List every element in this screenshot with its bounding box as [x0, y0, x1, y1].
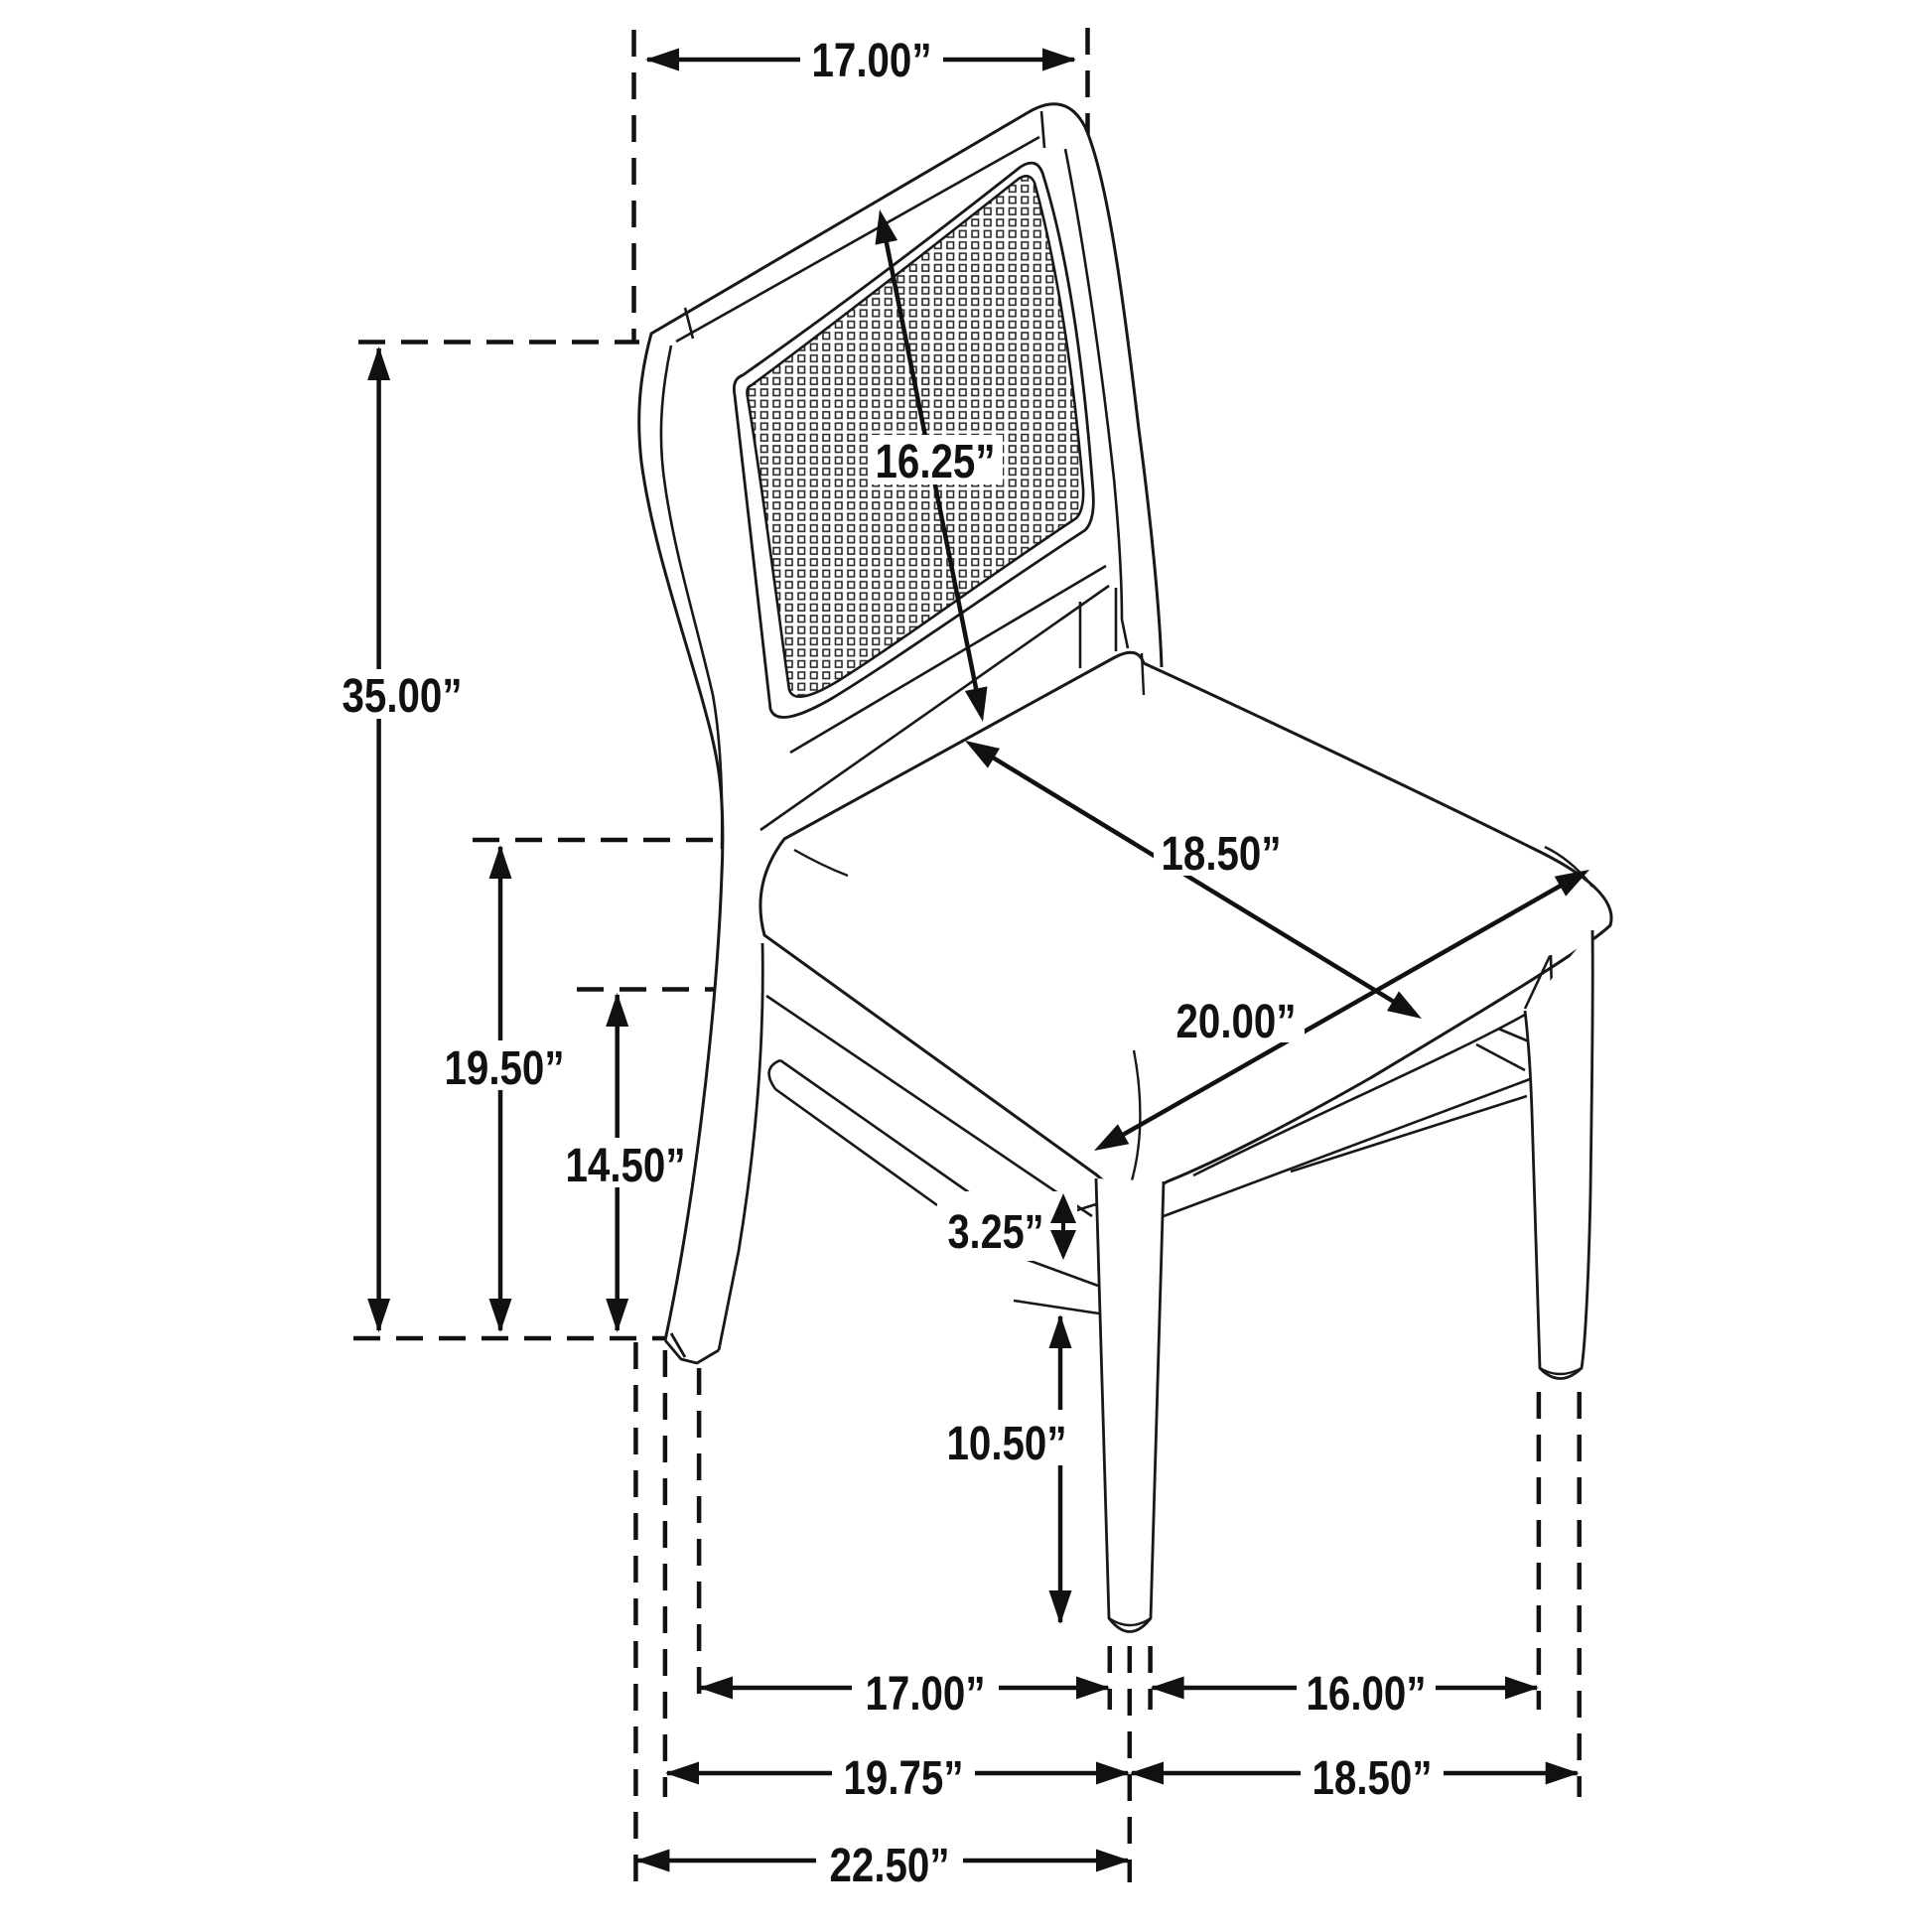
svg-text:17.00”: 17.00” — [866, 1668, 986, 1721]
svg-text:14.50”: 14.50” — [566, 1140, 686, 1192]
svg-text:19.50”: 19.50” — [445, 1042, 565, 1095]
svg-text:19.75”: 19.75” — [844, 1752, 964, 1805]
svg-text:17.00”: 17.00” — [812, 35, 932, 87]
svg-text:18.50”: 18.50” — [1162, 828, 1282, 881]
svg-text:20.00”: 20.00” — [1176, 996, 1297, 1048]
svg-text:18.50”: 18.50” — [1312, 1752, 1433, 1805]
svg-text:22.50”: 22.50” — [830, 1840, 950, 1892]
svg-text:16.25”: 16.25” — [876, 436, 996, 488]
svg-text:3.25”: 3.25” — [948, 1206, 1044, 1259]
svg-text:16.00”: 16.00” — [1307, 1668, 1427, 1721]
svg-text:10.50”: 10.50” — [947, 1418, 1067, 1470]
svg-text:35.00”: 35.00” — [343, 670, 463, 723]
